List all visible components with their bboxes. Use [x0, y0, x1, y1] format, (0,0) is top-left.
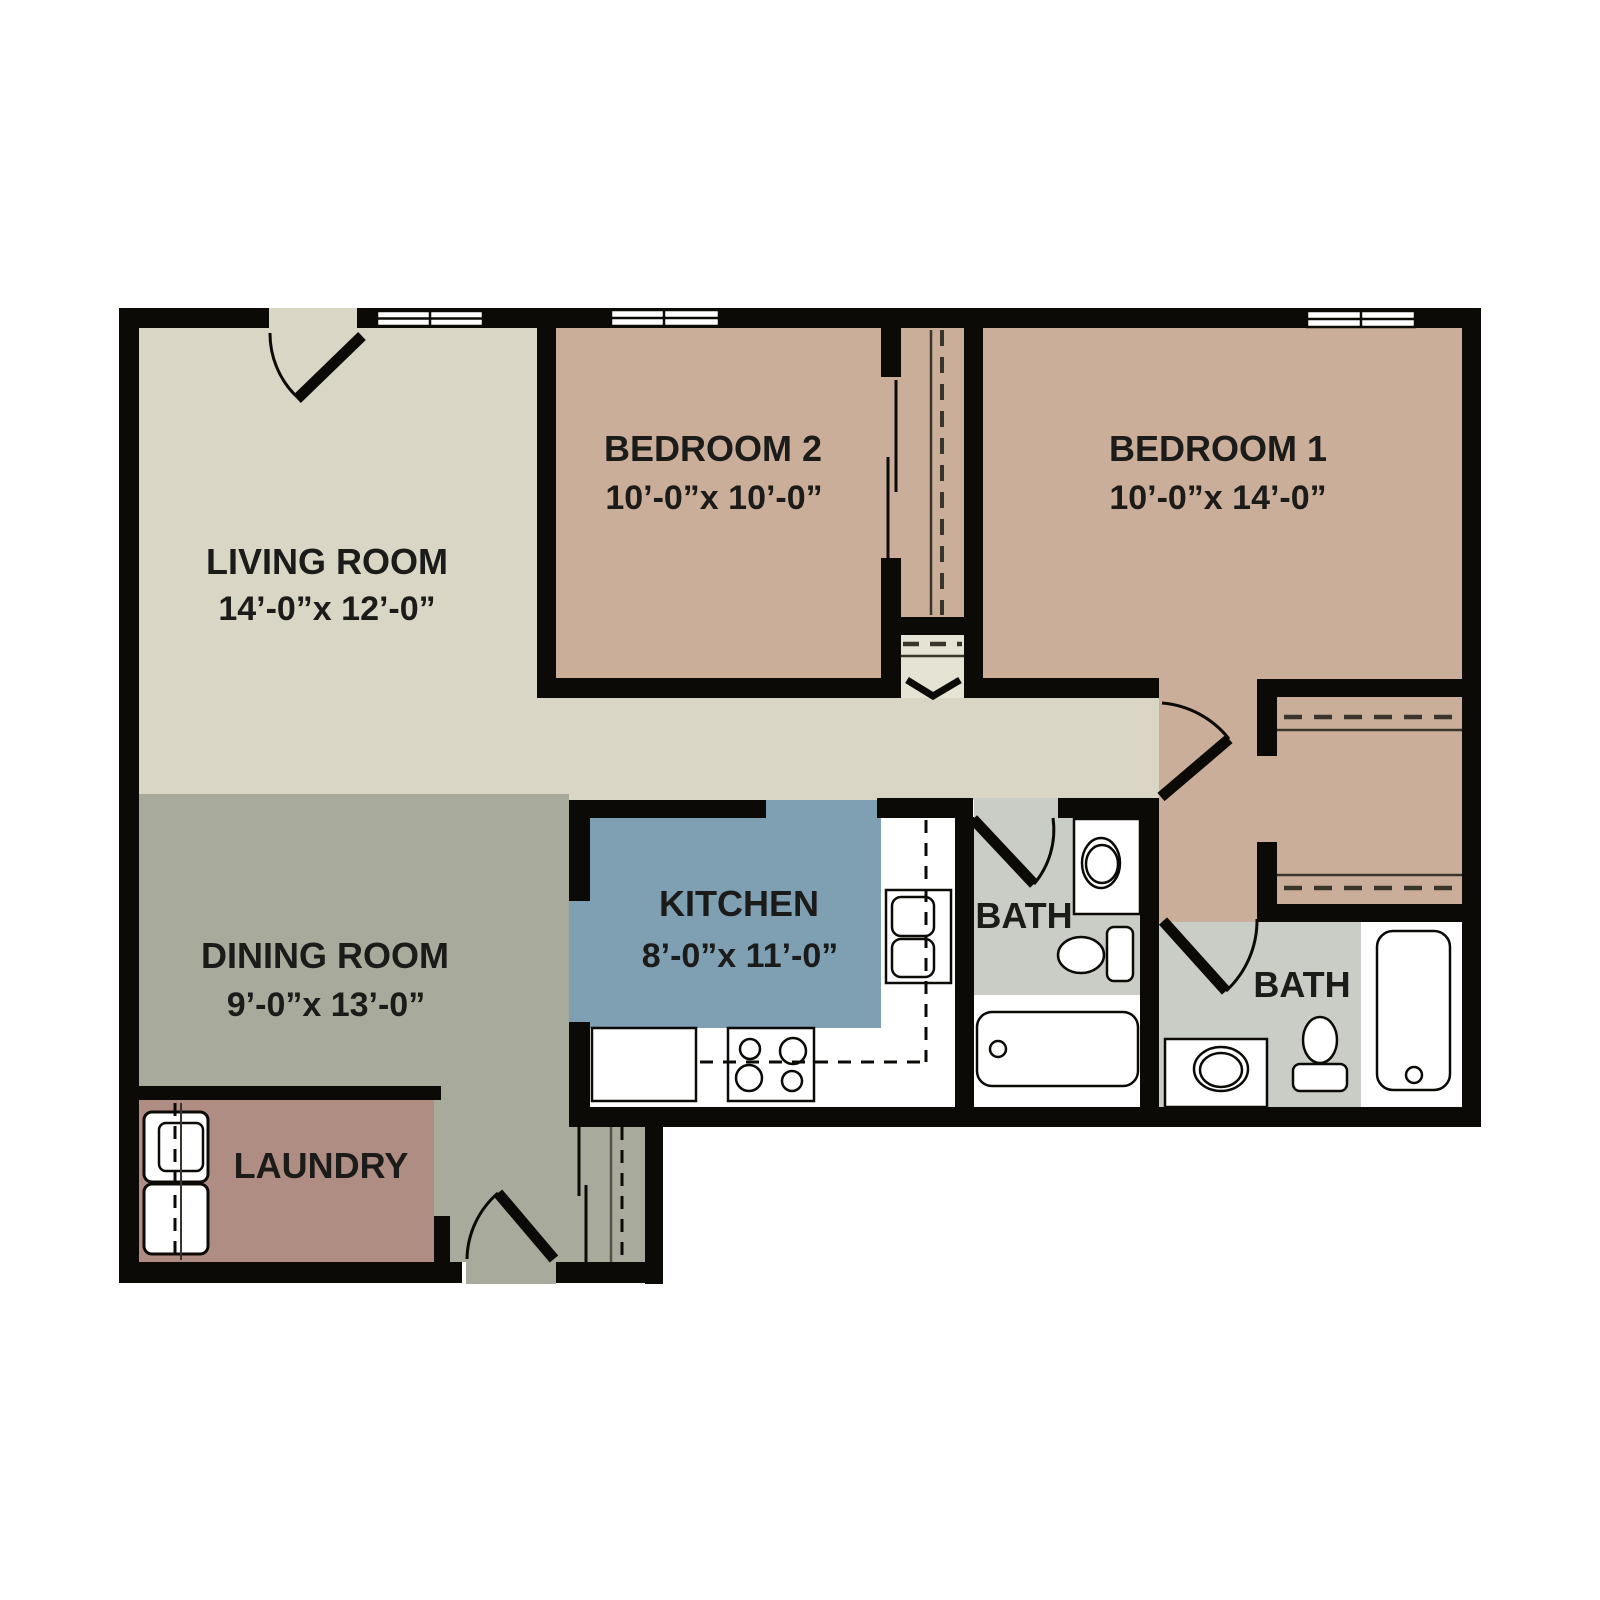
svg-text:LAUNDRY: LAUNDRY — [234, 1145, 409, 1186]
svg-text:BATH: BATH — [1253, 964, 1350, 1005]
svg-text:10’-0”x 14’-0”: 10’-0”x 14’-0” — [1109, 479, 1326, 517]
svg-text:8’-0”x 11’-0”: 8’-0”x 11’-0” — [642, 937, 839, 975]
svg-text:BEDROOM 2: BEDROOM 2 — [604, 428, 822, 469]
svg-text:9’-0”x 13’-0”: 9’-0”x 13’-0” — [227, 986, 425, 1024]
svg-text:10’-0”x 10’-0”: 10’-0”x 10’-0” — [605, 479, 822, 517]
svg-text:14’-0”x 12’-0”: 14’-0”x 12’-0” — [218, 590, 435, 628]
svg-text:BEDROOM 1: BEDROOM 1 — [1109, 428, 1327, 469]
svg-text:BATH: BATH — [975, 895, 1072, 936]
svg-text:DINING ROOM: DINING ROOM — [201, 935, 449, 976]
svg-text:LIVING ROOM: LIVING ROOM — [206, 541, 448, 582]
svg-text:KITCHEN: KITCHEN — [659, 883, 819, 924]
